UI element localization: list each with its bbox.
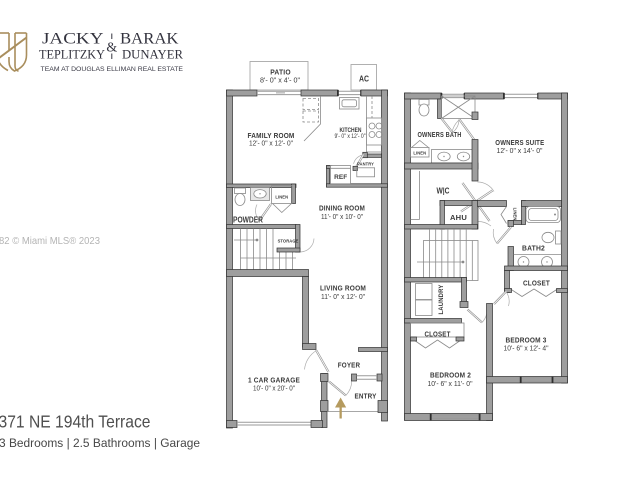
svg-text:1 CAR GARAGE: 1 CAR GARAGE	[248, 376, 300, 385]
svg-text:10'- 6" x 11'- 0": 10'- 6" x 11'- 0"	[428, 381, 474, 388]
svg-text:LAUNDRY: LAUNDRY	[438, 284, 445, 314]
svg-text:KITCHEN: KITCHEN	[340, 127, 362, 134]
svg-text:8'- 0" x 4'- 0": 8'- 0" x 4'- 0"	[260, 78, 301, 85]
svg-text:3 Bedrooms | 2.5 Bathrooms | G: 3 Bedrooms | 2.5 Bathrooms | Garage	[0, 436, 200, 450]
svg-text:CLOSET: CLOSET	[523, 279, 550, 288]
svg-text:BARAK: BARAK	[120, 31, 179, 48]
svg-text:DINING ROOM: DINING ROOM	[319, 204, 365, 213]
svg-text:LINEN: LINEN	[513, 208, 518, 221]
svg-text:W|C: W|C	[437, 186, 450, 195]
svg-text:DUNAYER: DUNAYER	[122, 48, 184, 62]
svg-text:CLOSET: CLOSET	[425, 329, 451, 338]
svg-text:OWNERS SUITE: OWNERS SUITE	[495, 138, 544, 147]
svg-text:BATH2: BATH2	[522, 244, 545, 253]
svg-text:AC: AC	[359, 74, 369, 84]
svg-text:10'- 0" x 20'- 0": 10'- 0" x 20'- 0"	[253, 385, 295, 392]
svg-text:TEAM AT DOUGLAS ELLIMAN REAL E: TEAM AT DOUGLAS ELLIMAN REAL ESTATE	[41, 66, 184, 73]
svg-text:82 © Miami MLS® 2023: 82 © Miami MLS® 2023	[0, 235, 100, 247]
svg-text:12'- 0" x 14'- 0": 12'- 0" x 14'- 0"	[497, 148, 544, 155]
svg-text:STORAGE: STORAGE	[278, 239, 299, 244]
svg-text:JACKY: JACKY	[42, 31, 104, 48]
svg-text:11'- 0" x 10'- 0": 11'- 0" x 10'- 0"	[321, 214, 364, 221]
svg-text:LIVING ROOM: LIVING ROOM	[320, 283, 366, 292]
svg-text:10'- 6" x 12'- 4": 10'- 6" x 12'- 4"	[504, 345, 550, 352]
svg-text:LINEN: LINEN	[275, 194, 288, 199]
svg-text:12'- 0" x 12'- 0": 12'- 0" x 12'- 0"	[249, 141, 294, 148]
svg-text:11'- 0" x 12'- 0": 11'- 0" x 12'- 0"	[321, 294, 366, 301]
svg-text:&: &	[106, 41, 117, 56]
svg-text:LINEN: LINEN	[413, 151, 426, 156]
svg-text:OWNERS BATH: OWNERS BATH	[418, 130, 462, 139]
svg-text:ENTRY: ENTRY	[355, 391, 377, 400]
svg-text:9'- 0" x 12'- 0": 9'- 0" x 12'- 0"	[335, 134, 366, 140]
svg-text:FOYER: FOYER	[338, 360, 361, 369]
svg-text:REF: REF	[334, 174, 347, 181]
svg-text:371 NE 194th Terrace: 371 NE 194th Terrace	[0, 412, 151, 432]
svg-text:BEDROOM 3: BEDROOM 3	[506, 335, 547, 344]
svg-text:FAMILY ROOM: FAMILY ROOM	[248, 131, 295, 140]
svg-text:POWDER: POWDER	[233, 215, 263, 224]
svg-text:PATIO: PATIO	[270, 68, 291, 77]
svg-text:TEPLITZKY: TEPLITZKY	[39, 48, 105, 62]
svg-text:BEDROOM 2: BEDROOM 2	[430, 371, 471, 380]
svg-text:PANTRY: PANTRY	[357, 161, 374, 166]
svg-text:AHU: AHU	[450, 213, 467, 222]
